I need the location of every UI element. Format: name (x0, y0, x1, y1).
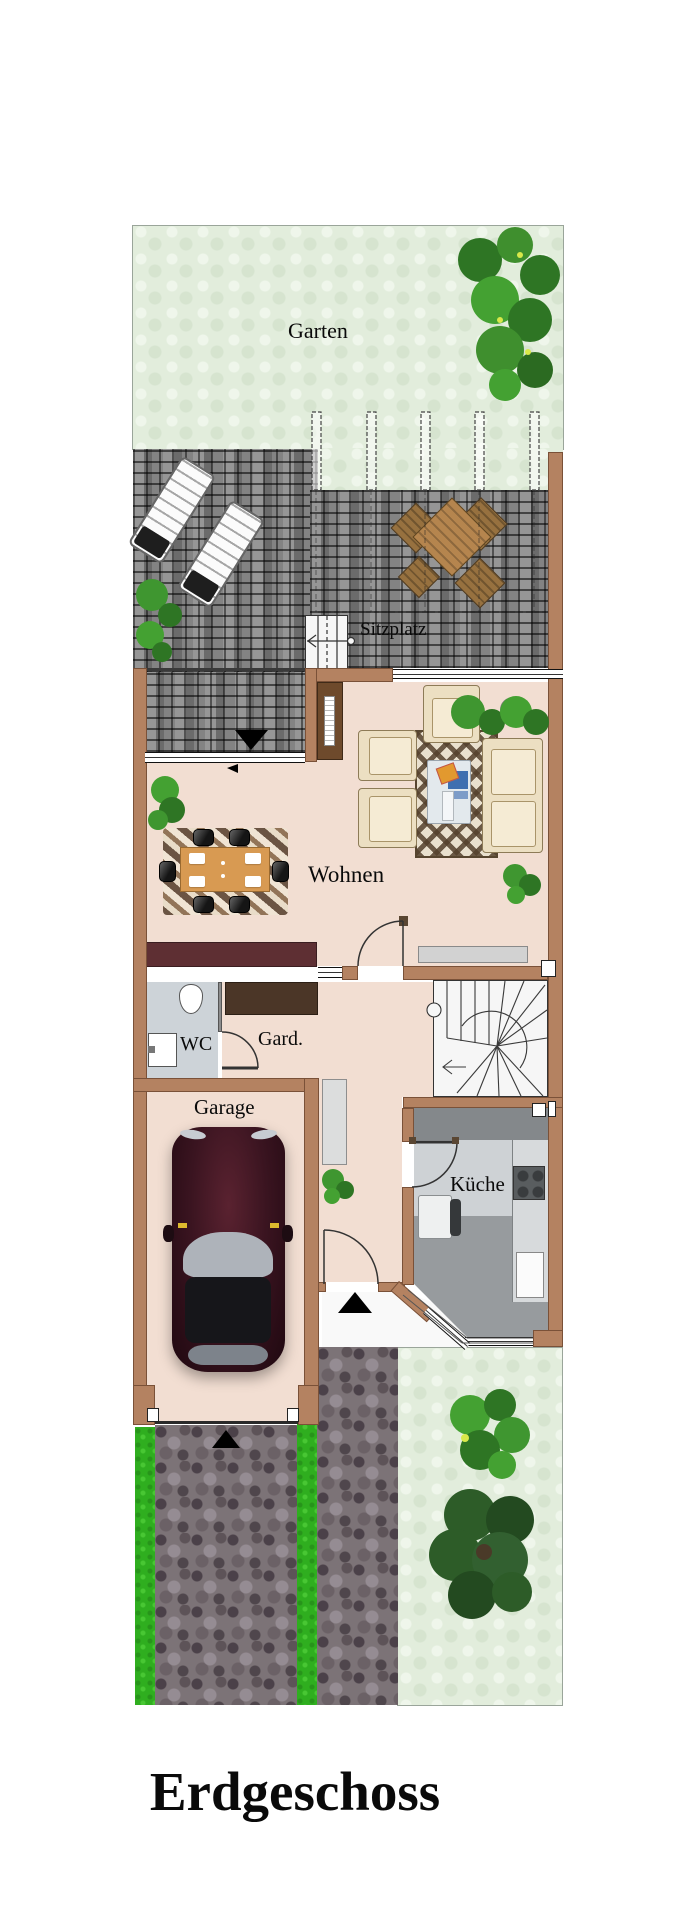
wall-wc-garage (133, 1078, 318, 1092)
wall-kitchen-left-b (402, 1187, 414, 1285)
grass-strip-left (135, 1427, 155, 1705)
car-mirror-right (282, 1225, 293, 1242)
label-wardrobe: Gard. (258, 1029, 303, 1049)
dining-chair (229, 829, 250, 846)
dining-chair (272, 861, 289, 882)
wall-garage-stub-right (298, 1385, 319, 1425)
garage-door-line (155, 1421, 298, 1424)
dining-chair (193, 896, 214, 913)
terrace-stair (305, 615, 348, 669)
page-title: Erdgeschoss (130, 1764, 460, 1819)
window-living-top (393, 669, 563, 679)
door-hinge-living (399, 916, 408, 926)
label-wc: WC (180, 1034, 212, 1054)
dining-chair (159, 861, 176, 882)
garden-area (133, 226, 563, 449)
terrace-pocket (145, 672, 305, 752)
sofa-left-lower (358, 788, 417, 848)
cooktop (513, 1166, 545, 1200)
wall-right (548, 452, 563, 1347)
label-garden: Garten (288, 320, 348, 342)
wall-garage-right (304, 1078, 319, 1425)
side-table-round (500, 697, 526, 723)
wardrobe (225, 982, 318, 1015)
sideboard-gray (418, 946, 528, 963)
window-pass-through (318, 967, 342, 978)
dining-chair (193, 829, 214, 846)
sofa-right (482, 738, 543, 853)
wall-living-south-right (403, 966, 548, 980)
car (172, 1127, 285, 1372)
armchair (423, 685, 480, 743)
garden-area-right (318, 448, 563, 490)
kitchen-floor-dark-band (414, 1108, 548, 1140)
wall-niche-stair (541, 960, 556, 977)
kitchen-chair (450, 1199, 461, 1236)
sideboard-red (145, 942, 317, 967)
shelf-wood (317, 682, 343, 760)
front-walkway (317, 1347, 398, 1705)
label-living: Wohnen (308, 863, 384, 886)
terrace-step-line (133, 668, 310, 671)
wall-kitchen-corner (533, 1330, 563, 1347)
dining-chair (229, 896, 250, 913)
hall-cabinet (322, 1079, 347, 1165)
wall-left (133, 668, 147, 1425)
label-terrace: Sitzplatz (360, 620, 426, 639)
front-garden (398, 1348, 562, 1705)
wall-niche-kitchen-b (548, 1101, 556, 1117)
stairwell (433, 980, 548, 1097)
coffee-table (427, 760, 471, 824)
dining-table (180, 847, 270, 892)
fridge (516, 1252, 544, 1298)
wall-living-top (305, 668, 393, 682)
label-garage: Garage (194, 1097, 255, 1118)
wall-niche-kitchen-a (532, 1103, 546, 1117)
kitchen-table (418, 1195, 452, 1239)
driveway (155, 1425, 297, 1705)
car-mirror-left (163, 1225, 174, 1242)
wall-hall-south-a (318, 1282, 326, 1292)
sofa-left-upper (358, 730, 417, 781)
floor-plan-page: Garten Sitzplatz Wohnen WC Gard. Garage … (0, 0, 683, 1920)
label-kitchen: Küche (450, 1174, 505, 1195)
garage-jamb-left (147, 1408, 159, 1422)
wall-living-south-left (342, 966, 358, 980)
wall-pocket-side (305, 668, 317, 762)
wall-kitchen-left-a (402, 1108, 414, 1142)
window-terrace-door (145, 752, 305, 763)
window-kitchen-south (465, 1337, 533, 1346)
wc-partition (218, 982, 222, 1032)
wash-basin (148, 1033, 177, 1067)
garage-jamb-right (287, 1408, 299, 1422)
